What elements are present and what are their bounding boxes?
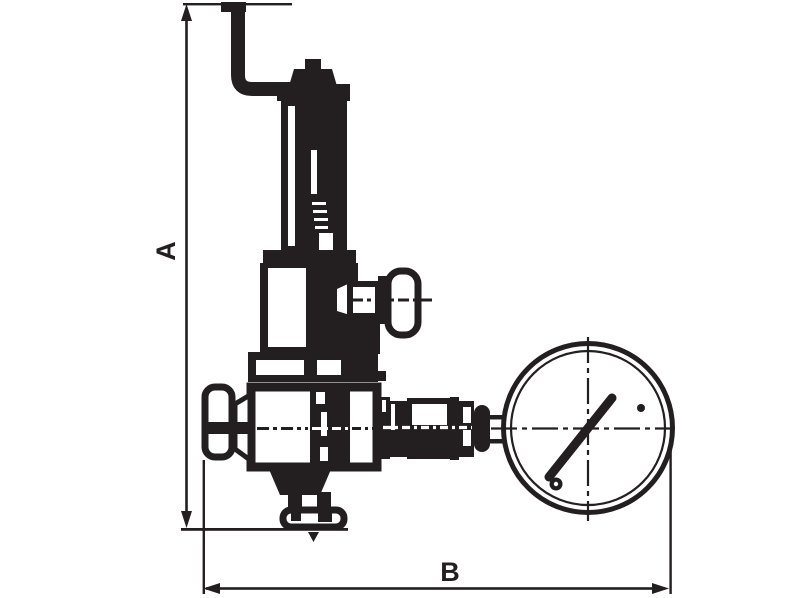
spring-housing — [277, 84, 350, 252]
hex-flange — [248, 352, 386, 382]
valve-drawing — [203, 2, 674, 542]
outlet-cone — [268, 467, 332, 495]
handle-rod — [238, 2, 298, 89]
pressure-gauge — [491, 337, 674, 521]
arrow-right-icon — [652, 583, 669, 594]
dimension-b-line — [206, 587, 665, 590]
gauge-boss — [474, 405, 490, 452]
dimension-a-label: A — [151, 241, 181, 261]
dial-dot — [637, 404, 645, 412]
inlet-waist — [203, 422, 251, 434]
gauge-piping — [380, 397, 505, 460]
drawing-canvas: A B — [0, 0, 800, 598]
gland-cap — [277, 84, 350, 101]
arrow-down-icon — [181, 511, 192, 528]
arrow-left-icon — [203, 583, 220, 594]
valve-dimension-drawing: A B — [0, 0, 800, 598]
inlet-union — [203, 387, 251, 460]
adjustment-handle — [221, 2, 298, 89]
main-body — [251, 385, 377, 469]
tap-handle — [388, 271, 418, 335]
arrow-up-icon — [181, 4, 192, 21]
outlet-tip-icon — [308, 532, 319, 542]
bonnet-flange — [263, 250, 356, 264]
extension-line-left — [203, 460, 205, 594]
dimension-b-label: B — [440, 557, 460, 587]
dimension-a-line — [185, 10, 188, 522]
handle-end-cap — [221, 2, 246, 12]
